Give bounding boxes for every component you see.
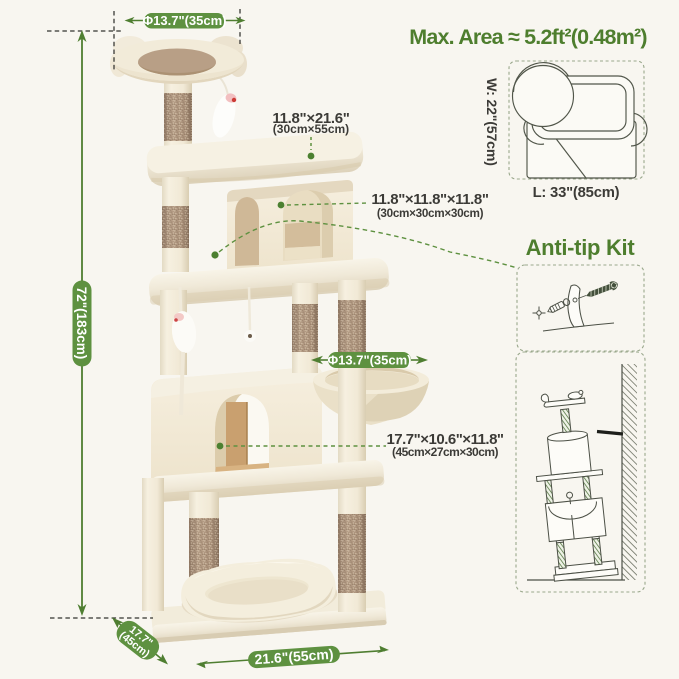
- svg-text:Max. Area ≈ 5.2ft²(0.48m²): Max. Area ≈ 5.2ft²(0.48m²): [409, 25, 647, 49]
- svg-text:Φ13.7"(35cm): Φ13.7"(35cm): [142, 13, 226, 28]
- svg-text:Φ13.7"(35cm): Φ13.7"(35cm): [327, 353, 411, 368]
- svg-text:11.8"×11.8"×11.8": 11.8"×11.8"×11.8": [371, 191, 488, 208]
- svg-text:(45cm×27cm×30cm): (45cm×27cm×30cm): [392, 445, 499, 459]
- svg-text:72"(183cm): 72"(183cm): [74, 287, 89, 359]
- svg-text:L: 33"(85cm): L: 33"(85cm): [533, 185, 620, 201]
- svg-text:(30cm×30cm×30cm): (30cm×30cm×30cm): [377, 207, 484, 220]
- svg-text:(30cm×55cm): (30cm×55cm): [273, 122, 349, 136]
- svg-text:Anti-tip Kit: Anti-tip Kit: [526, 235, 636, 260]
- svg-text:W: 22"(57cm): W: 22"(57cm): [483, 78, 499, 166]
